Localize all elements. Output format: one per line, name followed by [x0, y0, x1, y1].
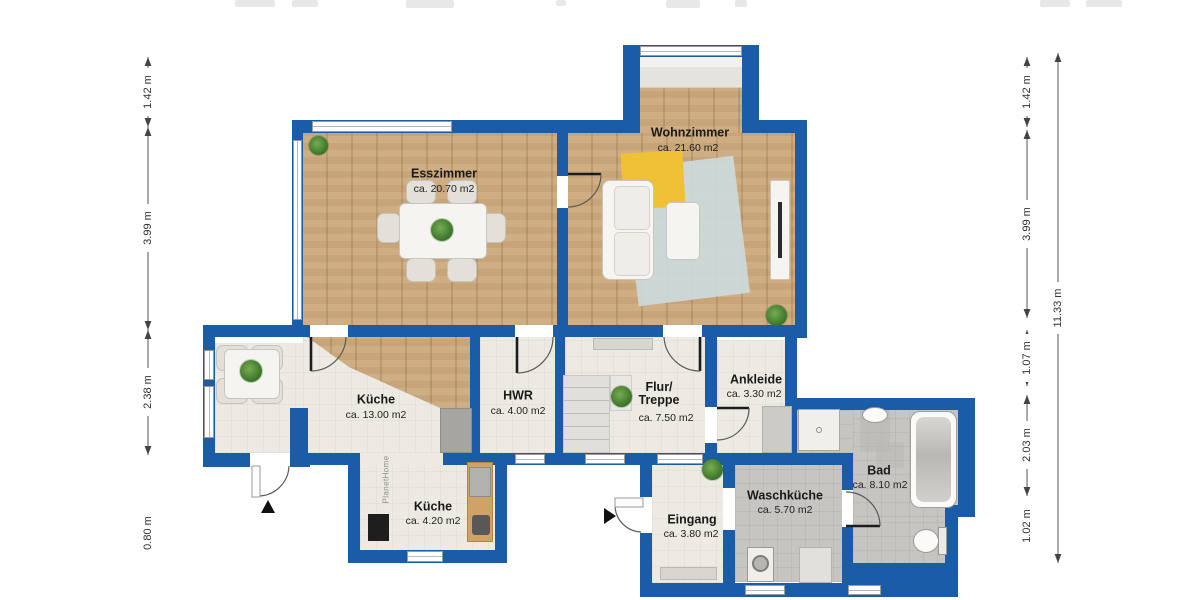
room-area-waschkueche: ca. 5.70 m2	[758, 504, 813, 516]
dim-left-2: 3.99 m	[142, 211, 154, 245]
room-name-eingang: Eingang	[667, 513, 716, 526]
door-leaves	[311, 174, 880, 526]
dim-right-2: 3.99 m	[1021, 207, 1033, 241]
dim-right-5: 1.02 m	[1021, 509, 1033, 543]
room-name-hwr: HWR	[503, 389, 533, 402]
room-area-esszimmer: ca. 20.70 m2	[414, 183, 475, 195]
room-name-waschkueche: Waschküche	[747, 489, 823, 502]
dimension-labels: 1.42 m 3.99 m 2.38 m 0.80 m 1.42 m 3.99 …	[142, 75, 1064, 550]
room-area-ankleide: ca. 3.30 m2	[727, 388, 782, 400]
dim-left-3: 2.38 m	[142, 375, 154, 409]
dim-right-4: 2.03 m	[1021, 428, 1033, 462]
room-area-flur-treppe: ca. 7.50 m2	[639, 412, 694, 424]
entrance-arrow-right-icon	[604, 508, 616, 524]
room-area-bad: ca. 8.10 m2	[853, 479, 908, 491]
room-area-kueche: ca. 13.00 m2	[346, 409, 407, 421]
door-arcs	[259, 174, 880, 532]
dim-right-1: 1.42 m	[1021, 75, 1033, 109]
dim-left-4: 0.80 m	[142, 516, 154, 550]
floorplan-canvas: 1.42 m 3.99 m 2.38 m 0.80 m 1.42 m 3.99 …	[0, 0, 1200, 600]
entrance-arrow-up-icon	[261, 500, 275, 513]
room-area-hwr: ca. 4.00 m2	[491, 405, 546, 417]
room-name-kueche2: Küche	[414, 500, 452, 513]
room-name-kueche: Küche	[357, 393, 395, 406]
room-area-wohnzimmer: ca. 21.60 m2	[658, 142, 719, 154]
watermark: PlanetHome	[382, 455, 391, 503]
room-name-esszimmer: Esszimmer	[411, 167, 477, 180]
dimension-arrowheads	[145, 53, 1062, 563]
room-area-eingang: ca. 3.80 m2	[664, 528, 719, 540]
room-name-bad: Bad	[867, 464, 891, 477]
room-name-wohnzimmer: Wohnzimmer	[651, 126, 729, 139]
room-name-ankleide: Ankleide	[730, 373, 782, 386]
room-area-kueche2: ca. 4.20 m2	[406, 515, 461, 527]
entrance-door-leaf	[615, 498, 643, 507]
dim-left-1: 1.42 m	[142, 75, 154, 109]
plan-annotations: 1.42 m 3.99 m 2.38 m 0.80 m 1.42 m 3.99 …	[0, 0, 1200, 600]
dim-total: 11.33 m	[1052, 289, 1064, 328]
dimension-label-plates	[140, 68, 1066, 557]
room-name-flur-treppe: Flur/ Treppe	[629, 381, 689, 407]
dimension-lines	[148, 53, 1058, 563]
dim-right-3: 1.07 m	[1021, 341, 1033, 375]
nook-door-leaf	[252, 466, 260, 497]
